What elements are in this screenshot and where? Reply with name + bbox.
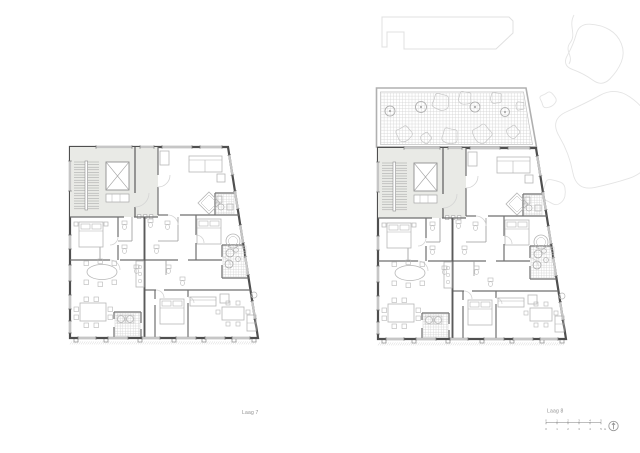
facade-hatch-strip: [378, 339, 565, 345]
stair-core: [378, 148, 466, 220]
svg-text:1: 1: [556, 427, 558, 431]
svg-text:5: 5: [600, 418, 602, 422]
plan-label-laag-7: Laag 7: [242, 410, 259, 416]
svg-text:4: 4: [589, 418, 591, 422]
neighbor-building-outline: [382, 17, 513, 49]
roof-terrace: [377, 88, 537, 147]
floorplan-laag-7: [68, 145, 258, 344]
svg-text:0: 0: [545, 418, 547, 422]
svg-text:1: 1: [556, 418, 558, 422]
svg-text:m: m: [604, 427, 607, 431]
drawing-canvas: Laag 7 Laag 8 001122334455m: [0, 0, 640, 453]
svg-text:3: 3: [578, 418, 580, 422]
facade-hatch-strip: [70, 338, 257, 344]
floorplan-laag-8: [376, 15, 640, 345]
svg-text:2: 2: [567, 427, 569, 431]
north-arrow-icon: [609, 421, 618, 430]
scale-bar: 001122334455m: [545, 418, 607, 431]
svg-text:4: 4: [589, 427, 591, 431]
svg-text:5: 5: [600, 427, 602, 431]
svg-text:2: 2: [567, 418, 569, 422]
svg-text:0: 0: [545, 427, 547, 431]
stair-core: [70, 147, 158, 219]
sheet: Laag 7 Laag 8 001122334455m: [0, 0, 640, 453]
plan-label-laag-8: Laag 8: [547, 409, 564, 415]
svg-text:3: 3: [578, 427, 580, 431]
vegetation-outline: [540, 15, 640, 205]
